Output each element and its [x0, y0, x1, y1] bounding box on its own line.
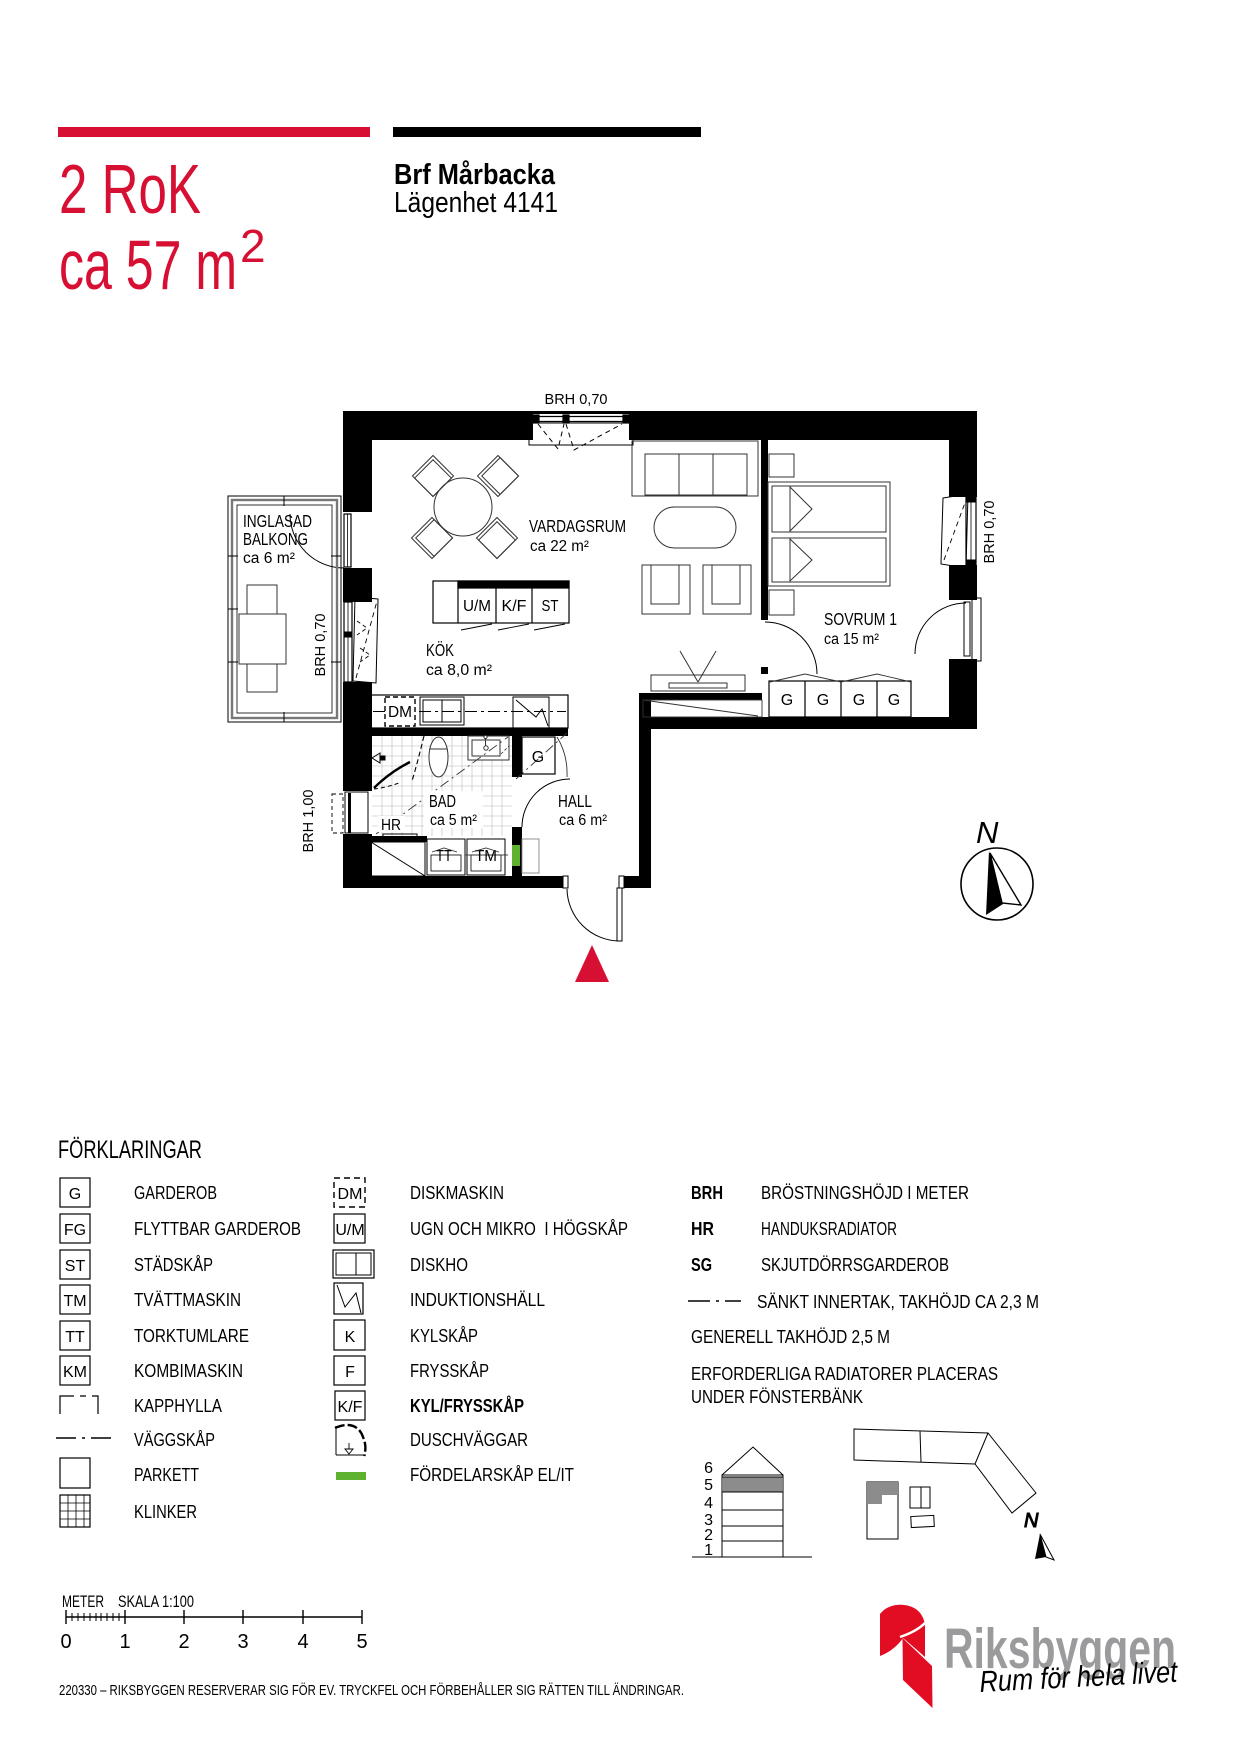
svg-text:ca 15 m²: ca 15 m² — [824, 631, 879, 648]
svg-text:G: G — [853, 692, 865, 709]
svg-text:HALL: HALL — [558, 791, 592, 811]
svg-text:ca 6 m²: ca 6 m² — [243, 550, 295, 567]
svg-text:PARKETT: PARKETT — [134, 1464, 199, 1485]
svg-text:1: 1 — [119, 1631, 130, 1653]
svg-text:FRYSSKÅP: FRYSSKÅP — [410, 1360, 489, 1381]
svg-text:6: 6 — [704, 1460, 713, 1477]
svg-text:4: 4 — [297, 1631, 308, 1653]
svg-text:KYL/FRYSSKÅP: KYL/FRYSSKÅP — [410, 1395, 524, 1416]
svg-text:2: 2 — [178, 1631, 189, 1653]
svg-text:BRH 0,70: BRH 0,70 — [545, 391, 608, 408]
svg-text:BRH 1,00: BRH 1,00 — [300, 790, 317, 853]
svg-text:K/F: K/F — [338, 1399, 363, 1416]
svg-text:4: 4 — [704, 1495, 713, 1512]
svg-text:UNDER FÖNSTERBÄNK: UNDER FÖNSTERBÄNK — [691, 1386, 864, 1407]
svg-text:TM: TM — [63, 1293, 86, 1310]
svg-text:0: 0 — [60, 1631, 71, 1653]
svg-text:DISKMASKIN: DISKMASKIN — [410, 1182, 504, 1203]
svg-text:G: G — [532, 749, 544, 766]
svg-text:BAD: BAD — [429, 791, 456, 811]
svg-text:INDUKTIONSHÄLL: INDUKTIONSHÄLL — [410, 1289, 545, 1310]
svg-text:METER: METER — [62, 1592, 104, 1611]
svg-text:TORKTUMLARE: TORKTUMLARE — [134, 1325, 249, 1346]
svg-text:G: G — [781, 692, 793, 709]
svg-text:BRH 0,70: BRH 0,70 — [312, 614, 329, 677]
svg-text:VARDAGSRUM: VARDAGSRUM — [529, 516, 626, 536]
svg-text:BRH 0,70: BRH 0,70 — [981, 501, 998, 564]
svg-text:TVÄTTMASKIN: TVÄTTMASKIN — [134, 1289, 241, 1310]
svg-text:FÖRDELARSKÅP EL/IT: FÖRDELARSKÅP EL/IT — [410, 1464, 574, 1485]
svg-text:SG: SG — [691, 1254, 712, 1275]
svg-text:GENERELL TAKHÖJD 2,5 M: GENERELL TAKHÖJD 2,5 M — [691, 1326, 890, 1347]
svg-text:HR: HR — [381, 817, 401, 834]
svg-text:ST: ST — [542, 598, 559, 615]
svg-text:SKALA 1:100: SKALA 1:100 — [118, 1592, 194, 1611]
svg-text:DM: DM — [338, 1186, 363, 1203]
svg-text:N: N — [976, 815, 999, 850]
svg-text:INGLASAD: INGLASAD — [243, 511, 312, 531]
svg-text:G: G — [817, 692, 829, 709]
svg-text:2 RoK: 2 RoK — [59, 150, 201, 228]
svg-text:KM: KM — [63, 1364, 87, 1381]
svg-text:SKJUTDÖRRSGARDEROB: SKJUTDÖRRSGARDEROB — [761, 1254, 949, 1275]
svg-text:220330 – RIKSBYGGEN RESERVERAR: 220330 – RIKSBYGGEN RESERVERAR SIG FÖR E… — [59, 1681, 684, 1699]
svg-text:U/M: U/M — [335, 1222, 364, 1239]
svg-text:DM: DM — [388, 704, 412, 721]
svg-text:KÖK: KÖK — [426, 640, 454, 660]
svg-text:HANDUKSRADIATOR: HANDUKSRADIATOR — [761, 1218, 897, 1239]
svg-text:STÄDSKÅP: STÄDSKÅP — [134, 1254, 213, 1275]
svg-text:BALKONG: BALKONG — [243, 529, 308, 549]
svg-text:KLINKER: KLINKER — [134, 1501, 197, 1522]
svg-text:ca 5 m²: ca 5 m² — [430, 812, 477, 829]
svg-text:FÖRKLARINGAR: FÖRKLARINGAR — [58, 1136, 202, 1164]
svg-text:K/F: K/F — [502, 598, 527, 615]
svg-text:5: 5 — [356, 1631, 367, 1653]
svg-text:K: K — [345, 1329, 356, 1346]
svg-text:VÄGGSKÅP: VÄGGSKÅP — [134, 1429, 215, 1450]
svg-text:TT: TT — [436, 848, 452, 865]
svg-text:Lägenhet 4141: Lägenhet 4141 — [394, 187, 558, 219]
svg-text:FLYTTBAR GARDEROB: FLYTTBAR GARDEROB — [134, 1218, 301, 1239]
svg-text:GARDEROB: GARDEROB — [134, 1182, 217, 1203]
svg-text:DUSCHVÄGGAR: DUSCHVÄGGAR — [410, 1429, 528, 1450]
svg-text:3: 3 — [237, 1631, 248, 1653]
svg-text:SOVRUM 1: SOVRUM 1 — [824, 609, 897, 629]
svg-text:HR: HR — [691, 1218, 714, 1239]
svg-text:5: 5 — [704, 1477, 713, 1494]
svg-text:F: F — [345, 1364, 355, 1381]
svg-text:SÄNKT INNERTAK, TAKHÖJD CA 2,3: SÄNKT INNERTAK, TAKHÖJD CA 2,3 M — [757, 1291, 1039, 1312]
svg-text:FG: FG — [64, 1222, 86, 1239]
svg-text:N: N — [1024, 1510, 1039, 1532]
svg-text:DISKHO: DISKHO — [410, 1254, 468, 1275]
svg-text:G: G — [888, 692, 900, 709]
svg-text:ca 8,0 m²: ca 8,0 m² — [426, 662, 492, 679]
svg-text:TT: TT — [65, 1329, 85, 1346]
svg-text:2: 2 — [240, 220, 266, 272]
svg-text:KAPPHYLLA: KAPPHYLLA — [134, 1395, 223, 1416]
svg-text:ST: ST — [65, 1258, 86, 1275]
svg-text:ca 22 m²: ca 22 m² — [530, 538, 589, 555]
svg-text:G: G — [69, 1186, 81, 1203]
svg-text:ERFORDERLIGA RADIATORER PLACER: ERFORDERLIGA RADIATORER PLACERAS — [691, 1363, 998, 1384]
svg-text:BRH: BRH — [691, 1182, 723, 1203]
svg-text:1: 1 — [704, 1542, 713, 1559]
svg-text:ca 57 m: ca 57 m — [59, 226, 237, 304]
svg-text:KYLSKÅP: KYLSKÅP — [410, 1325, 478, 1346]
svg-text:KOMBIMASKIN: KOMBIMASKIN — [134, 1360, 243, 1381]
svg-text:U/M: U/M — [463, 598, 491, 615]
svg-text:ca 6 m²: ca 6 m² — [559, 812, 607, 829]
svg-text:BRÖSTNINGSHÖJD I METER: BRÖSTNINGSHÖJD I METER — [761, 1182, 969, 1203]
svg-text:UGN OCH MIKRO I HÖGSKÅP: UGN OCH MIKRO I HÖGSKÅP — [410, 1218, 628, 1239]
